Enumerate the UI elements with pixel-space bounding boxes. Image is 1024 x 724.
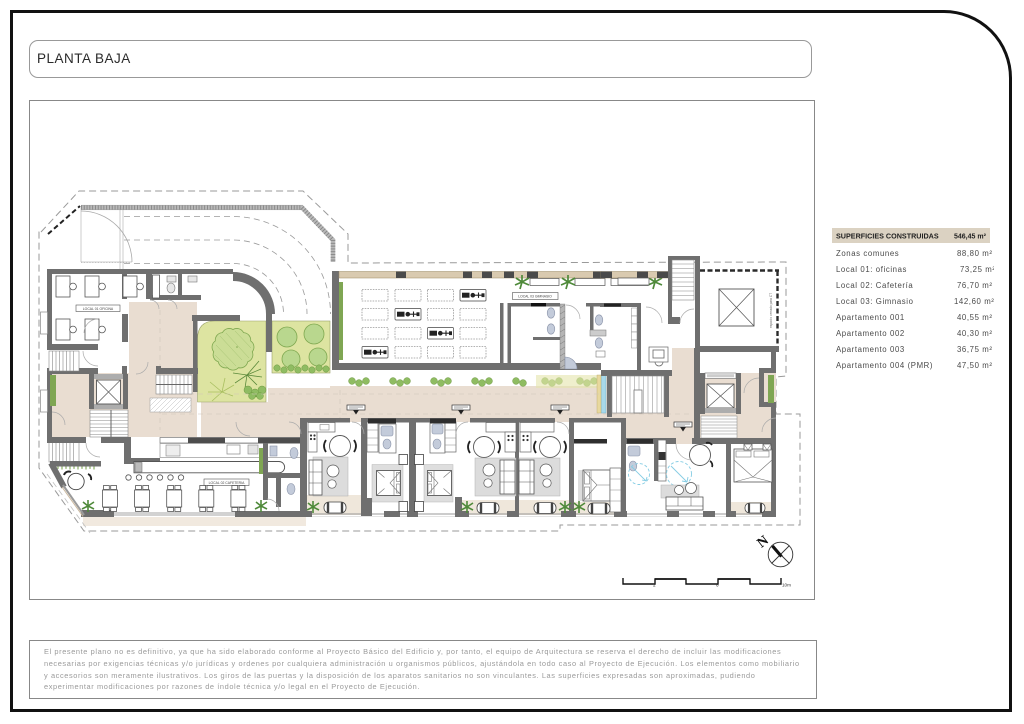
svg-text:546,45 m²: 546,45 m² (954, 234, 987, 241)
svg-text:47,50 m²: 47,50 m² (957, 361, 993, 370)
svg-text:10m: 10m (782, 583, 791, 588)
svg-text:6: 6 (716, 583, 719, 588)
svg-text:Apartamento 002: Apartamento 002 (836, 329, 905, 338)
svg-text:2: 2 (653, 583, 656, 588)
svg-text:SUPERFICIES CONSTRUIDAS: SUPERFICIES CONSTRUIDAS (836, 232, 939, 241)
svg-text:76,70 m²: 76,70 m² (957, 281, 993, 290)
svg-text:Local 03: Gimnasio: Local 03: Gimnasio (836, 297, 914, 306)
svg-text:espacio cerrado para CT: espacio cerrado para CT (769, 293, 773, 328)
svg-text:LOCAL 03 GIMNASIO: LOCAL 03 GIMNASIO (518, 295, 552, 299)
svg-text:40,30 m²: 40,30 m² (957, 329, 993, 338)
svg-text:Apartamento 001: Apartamento 001 (836, 313, 905, 322)
svg-text:LOCAL 02 CAFETERIA: LOCAL 02 CAFETERIA (209, 481, 245, 485)
svg-text:Apartamento 004 (PMR): Apartamento 004 (PMR) (836, 361, 933, 370)
svg-text:Local 02: Cafetería: Local 02: Cafetería (836, 281, 913, 290)
svg-text:88,80 m²: 88,80 m² (957, 249, 993, 258)
svg-text:36,75 m²: 36,75 m² (957, 345, 993, 354)
svg-text:LOCAL 01 OFICINA: LOCAL 01 OFICINA (83, 307, 114, 311)
svg-text:Local 01: oficinas: Local 01: oficinas (836, 265, 907, 274)
svg-text:73,25 m²: 73,25 m² (960, 265, 994, 274)
svg-text:Apartamento 003: Apartamento 003 (836, 345, 905, 354)
svg-text:N: N (755, 533, 772, 551)
svg-text:40,55 m²: 40,55 m² (957, 313, 993, 322)
svg-text:142,60 m²: 142,60 m² (954, 297, 994, 306)
svg-text:Zonas comunes: Zonas comunes (836, 249, 899, 258)
